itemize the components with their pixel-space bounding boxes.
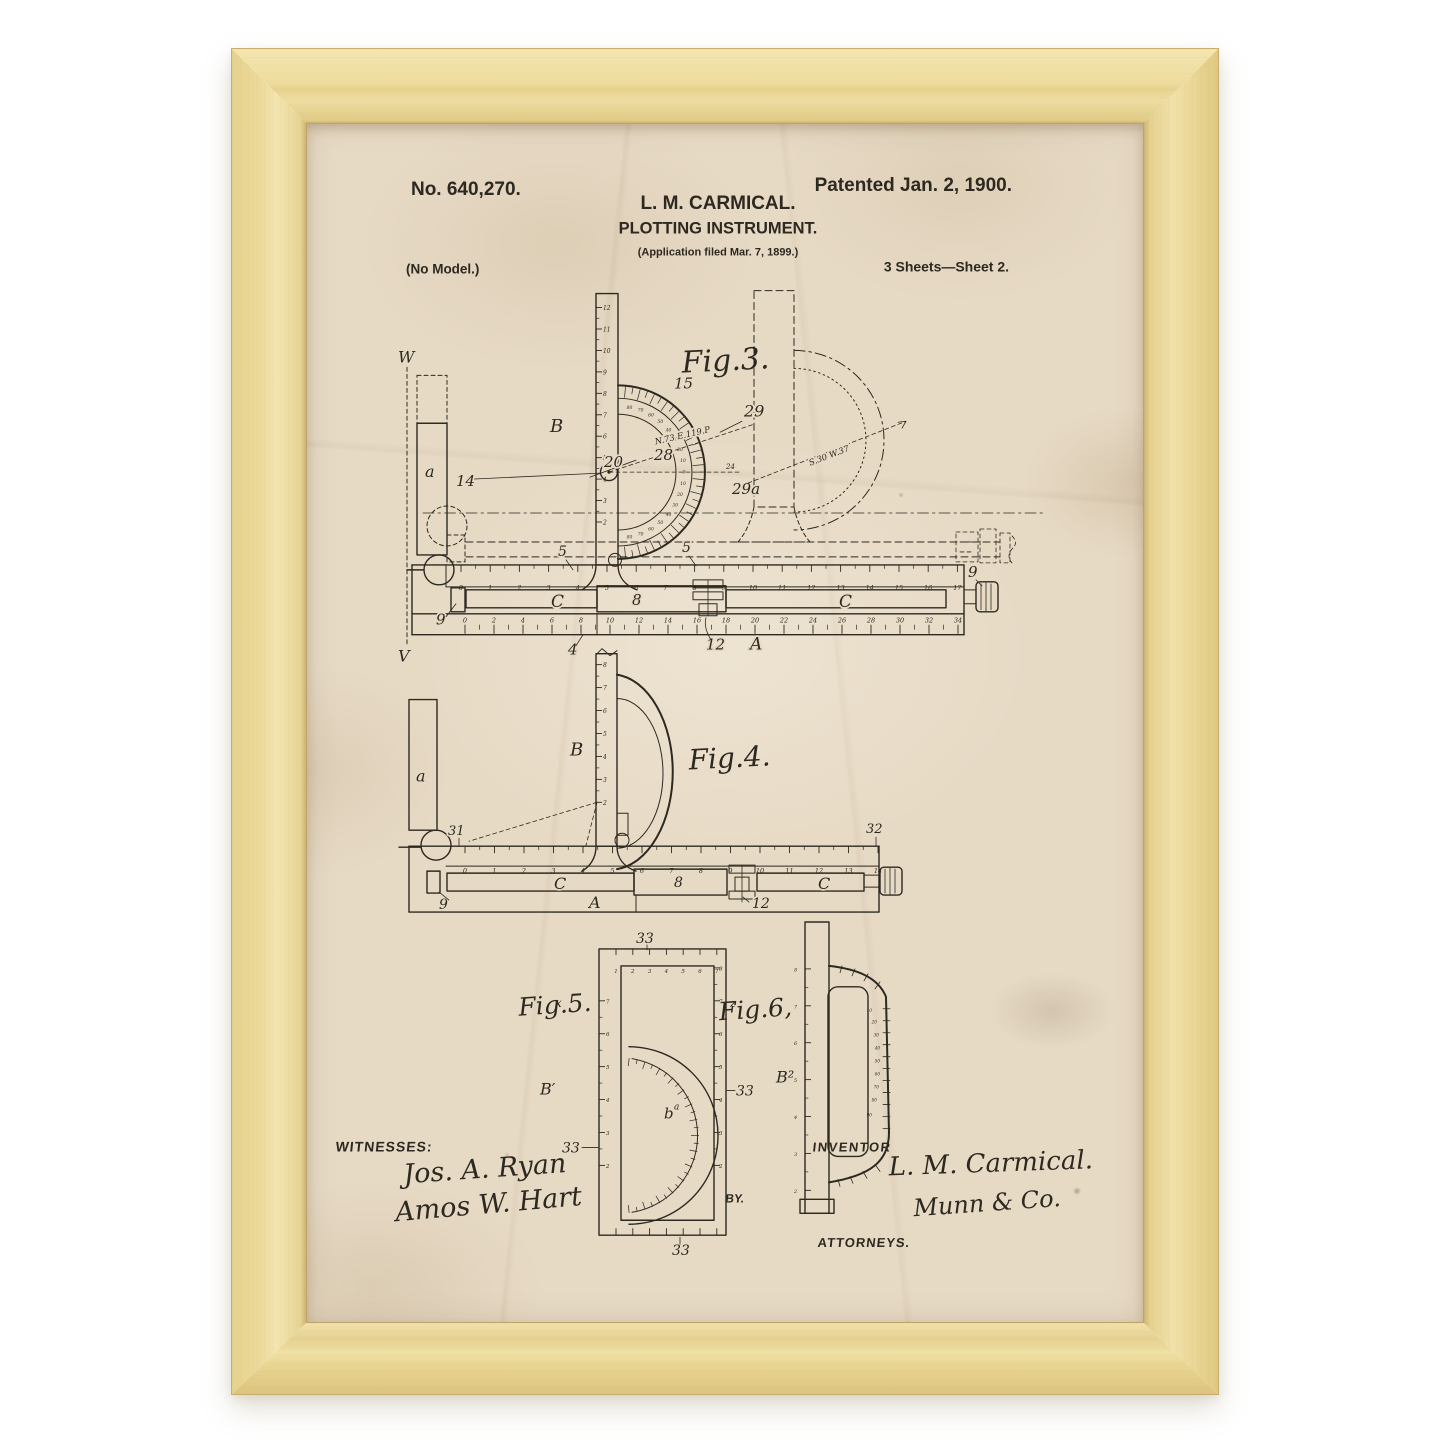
attorney-signature: Munn & Co. — [911, 1184, 1061, 1222]
svg-text:5: 5 — [605, 584, 609, 592]
fig6-bar-scale: 8765432 — [793, 967, 811, 1194]
patent-date: Patented Jan. 2, 1900. — [815, 175, 1012, 196]
fig3-label-c-left: C — [551, 592, 564, 612]
svg-text:7: 7 — [794, 1004, 798, 1010]
attorneys-label: ATTORNEYS. — [817, 1235, 911, 1250]
svg-text:16: 16 — [693, 617, 701, 625]
svg-text:5: 5 — [606, 1065, 610, 1071]
fig3-label-29: 29 — [743, 401, 764, 420]
fig3-label-4: 4 — [567, 641, 578, 659]
figure-3: Fig.3. W V — [398, 291, 1046, 666]
svg-text:10: 10 — [680, 481, 686, 487]
svg-text:3: 3 — [603, 498, 607, 505]
svg-text:6: 6 — [698, 969, 702, 975]
fig4-label-arm: a — [416, 766, 426, 785]
frame-bottom-bar — [232, 1323, 1218, 1394]
svg-text:20: 20 — [871, 1020, 878, 1025]
fig4-top-scale: 01234567891011121314 — [463, 846, 882, 875]
inventor-name-header: L. M. CARMICAL. — [640, 193, 795, 214]
svg-text:5: 5 — [610, 867, 614, 875]
fig5-label-b: b — [664, 1105, 674, 1123]
fig6-caption: Fig.6, — [717, 992, 793, 1026]
svg-text:20: 20 — [676, 492, 683, 498]
fig6-handle-labels: 102030405060708090 — [867, 1008, 881, 1118]
svg-text:13: 13 — [836, 584, 844, 592]
fig4-label-ruler-b: B — [569, 739, 583, 760]
svg-text:7: 7 — [669, 867, 674, 875]
svg-text:20: 20 — [750, 617, 759, 625]
svg-text:12: 12 — [603, 305, 611, 312]
svg-text:6: 6 — [794, 1041, 797, 1047]
svg-text:70: 70 — [638, 531, 644, 537]
fig5-33-right: 33 — [736, 1084, 754, 1100]
svg-text:6: 6 — [603, 434, 607, 441]
svg-text:28: 28 — [866, 617, 875, 625]
fig3-bearing-2: S.30 W.37 — [807, 443, 851, 468]
svg-text:4: 4 — [575, 584, 580, 592]
fig4-label-12: 12 — [752, 896, 770, 912]
svg-text:2: 2 — [516, 584, 521, 592]
svg-text:32: 32 — [925, 617, 933, 625]
svg-text:0: 0 — [463, 617, 467, 625]
fig4-ruler-b-scale: 8765432 — [596, 662, 607, 807]
svg-text:12: 12 — [807, 584, 815, 592]
fig5-corner-x: x — [555, 996, 562, 1010]
fig3-label-5-left: 5 — [558, 544, 567, 560]
svg-text:18: 18 — [722, 617, 730, 625]
frame-top-bar — [232, 49, 1218, 123]
svg-text:15: 15 — [895, 584, 903, 592]
svg-text:3: 3 — [603, 777, 607, 784]
application-note: (Application filed Mar. 7, 1899.) — [638, 247, 799, 259]
patent-title: PLOTTING INSTRUMENT. — [619, 220, 818, 238]
fig5-left-scale: 765432 — [599, 999, 610, 1170]
svg-text:9: 9 — [603, 369, 607, 376]
svg-text:2: 2 — [602, 520, 607, 527]
svg-text:1: 1 — [488, 584, 492, 592]
svg-text:50: 50 — [875, 1059, 881, 1064]
svg-text:4: 4 — [605, 1098, 610, 1104]
svg-text:16: 16 — [924, 584, 932, 592]
fig5-top-scale: 1234567 — [614, 949, 719, 975]
fig3-label-9-left: 9 — [436, 611, 446, 629]
picture-frame: No. 640,270. Patented Jan. 2, 1900. L. M… — [232, 49, 1218, 1394]
svg-text:80: 80 — [872, 1098, 878, 1103]
figure-6: Fig.6, z 8765432 — [717, 922, 890, 1213]
fig3-label-9-right: 9 — [968, 563, 978, 581]
svg-text:2: 2 — [630, 969, 635, 975]
svg-text:70: 70 — [874, 1085, 880, 1090]
svg-text:60: 60 — [648, 413, 654, 419]
svg-text:50: 50 — [658, 419, 664, 425]
svg-text:24: 24 — [808, 617, 817, 625]
fig3-label-14: 14 — [456, 472, 475, 490]
svg-text:7: 7 — [603, 412, 607, 419]
svg-text:30: 30 — [672, 503, 678, 509]
svg-text:6: 6 — [603, 708, 607, 715]
patent-header: No. 640,270. Patented Jan. 2, 1900. L. M… — [406, 175, 1012, 277]
svg-text:5: 5 — [794, 1078, 797, 1084]
svg-text:5: 5 — [603, 731, 607, 738]
fig3-label-24: 24 — [725, 463, 735, 471]
fig5-33-bottom: 33 — [672, 1243, 690, 1259]
svg-text:7: 7 — [606, 999, 610, 1005]
svg-text:22: 22 — [779, 617, 788, 625]
svg-text:40: 40 — [874, 1046, 881, 1051]
svg-text:11: 11 — [603, 326, 611, 333]
svg-text:60: 60 — [875, 1072, 881, 1077]
svg-text:2: 2 — [718, 1164, 723, 1170]
svg-text:5: 5 — [719, 1065, 723, 1071]
patent-number: No. 640,270. — [411, 179, 521, 200]
svg-text:8: 8 — [603, 391, 607, 398]
svg-text:12: 12 — [635, 617, 643, 625]
fig3-label-w: W — [398, 347, 416, 366]
svg-text:26: 26 — [837, 617, 846, 625]
svg-text:8: 8 — [603, 662, 607, 669]
svg-text:4: 4 — [520, 617, 525, 625]
svg-text:8: 8 — [719, 966, 723, 972]
fig6-label-ruler: B² — [775, 1068, 794, 1087]
svg-text:30: 30 — [874, 1033, 880, 1038]
fig6-corner-z: z — [729, 997, 736, 1010]
svg-text:6: 6 — [550, 617, 554, 625]
fig3-label-29a: 29a — [731, 480, 760, 498]
product-photo: No. 640,270. Patented Jan. 2, 1900. L. M… — [0, 0, 1445, 1445]
svg-text:4: 4 — [793, 1115, 797, 1121]
svg-text:7: 7 — [603, 685, 607, 692]
svg-text:8: 8 — [579, 617, 583, 625]
frame-right-bar — [1144, 49, 1218, 1394]
svg-text:80: 80 — [627, 405, 633, 411]
by-label: BY. — [725, 1191, 746, 1205]
fig4-label-c-left: C — [554, 874, 566, 893]
fig4-label-32: 32 — [866, 822, 883, 837]
svg-text:2: 2 — [521, 867, 526, 875]
patent-sheet: No. 640,270. Patented Jan. 2, 1900. L. M… — [306, 123, 1144, 1323]
sheet-note: 3 Sheets—Sheet 2. — [884, 259, 1009, 275]
svg-text:0: 0 — [463, 867, 467, 875]
patent-drawing: No. 640,270. Patented Jan. 2, 1900. L. M… — [306, 123, 1144, 1323]
svg-text:1: 1 — [492, 867, 496, 875]
svg-text:3: 3 — [648, 969, 652, 975]
svg-text:6: 6 — [719, 1032, 723, 1038]
inventor-heading: INVENTOR — [812, 1139, 892, 1154]
svg-text:4: 4 — [602, 754, 607, 761]
fig3-label-15: 15 — [674, 374, 693, 392]
svg-text:80: 80 — [627, 534, 633, 540]
svg-text:3: 3 — [794, 1152, 797, 1158]
inventor-signature: L. M. Carmical. — [887, 1145, 1093, 1182]
svg-text:3: 3 — [719, 1131, 723, 1137]
fig3-bottom-scale: 0246810121416182022242628303234 — [463, 617, 962, 634]
fig3-label-ruler-b: B — [549, 416, 563, 437]
fig4-label-a-base: A — [587, 893, 601, 912]
fig3-label-28: 28 — [653, 446, 673, 464]
svg-text:6: 6 — [640, 867, 644, 875]
fig4-caption: Fig.4. — [687, 739, 772, 776]
svg-text:10: 10 — [867, 1008, 873, 1013]
svg-text:14: 14 — [866, 584, 874, 592]
svg-text:4: 4 — [718, 1098, 723, 1104]
fig4-label-8: 8 — [674, 875, 683, 891]
svg-text:90: 90 — [867, 1113, 873, 1118]
fig3-label-12: 12 — [706, 636, 725, 654]
svg-text:50: 50 — [658, 520, 664, 526]
no-model-note: (No Model.) — [406, 262, 479, 277]
svg-text:14: 14 — [664, 617, 672, 625]
frame-left-bar — [232, 49, 306, 1394]
witnesses-heading: WITNESSES: — [335, 1138, 434, 1154]
svg-text:2: 2 — [491, 617, 496, 625]
svg-text:2: 2 — [602, 800, 607, 807]
svg-text:13: 13 — [844, 867, 852, 875]
svg-text:7: 7 — [663, 584, 668, 592]
fig3-label-5-right: 5 — [682, 540, 691, 556]
svg-text:11: 11 — [785, 867, 793, 875]
fig3-label-c-right: C — [839, 592, 852, 612]
svg-text:8: 8 — [699, 867, 703, 875]
svg-text:10: 10 — [603, 348, 611, 355]
svg-text:3: 3 — [547, 584, 551, 592]
svg-text:1: 1 — [614, 969, 618, 975]
svg-text:10: 10 — [749, 584, 757, 592]
svg-text:0: 0 — [683, 470, 686, 476]
fig5-label-ruler: B′ — [539, 1080, 556, 1099]
svg-text:8: 8 — [794, 967, 797, 973]
figure-4: Fig.4. 8765432 B a — [399, 649, 902, 913]
fig3-ruler-b-scale: 12111098765432 — [596, 305, 611, 526]
fig5-bottom-ticks — [616, 1228, 717, 1235]
svg-text:60: 60 — [648, 527, 654, 533]
svg-text:2: 2 — [793, 1189, 797, 1195]
svg-text:2: 2 — [605, 1164, 610, 1170]
fig4-label-31: 31 — [448, 824, 465, 839]
fig5-33-top: 33 — [636, 931, 654, 947]
fig4-label-c-right: C — [818, 874, 830, 893]
svg-text:34: 34 — [954, 617, 962, 625]
fig3-caption: Fig.3. — [680, 341, 770, 381]
fig3-label-v: V — [398, 647, 411, 666]
fig5-label-b-sup: a — [674, 1103, 679, 1113]
fig5-arc-ticks — [628, 1058, 699, 1213]
svg-text:70: 70 — [638, 408, 644, 414]
svg-text:40: 40 — [665, 512, 672, 518]
svg-text:10: 10 — [606, 617, 614, 625]
svg-text:17: 17 — [953, 584, 962, 592]
svg-text:30: 30 — [896, 617, 904, 625]
fig3-label-8: 8 — [632, 591, 642, 609]
svg-text:5: 5 — [681, 969, 685, 975]
inventor-block: INVENTOR L. M. Carmical. BY. Munn & Co. … — [725, 1139, 1094, 1250]
fig3-label-arm: a — [425, 462, 435, 481]
fig3-label-20: 20 — [603, 453, 624, 471]
svg-text:6: 6 — [606, 1032, 610, 1038]
svg-text:11: 11 — [778, 584, 786, 592]
svg-text:3: 3 — [606, 1131, 610, 1137]
witnesses-block: WITNESSES: Jos. A. Ryan Amos W. Hart — [335, 1138, 584, 1228]
fig4-label-9: 9 — [439, 897, 448, 913]
fig3-label-a-base: A — [748, 635, 762, 655]
svg-text:10: 10 — [680, 458, 686, 464]
svg-text:4: 4 — [664, 969, 669, 975]
